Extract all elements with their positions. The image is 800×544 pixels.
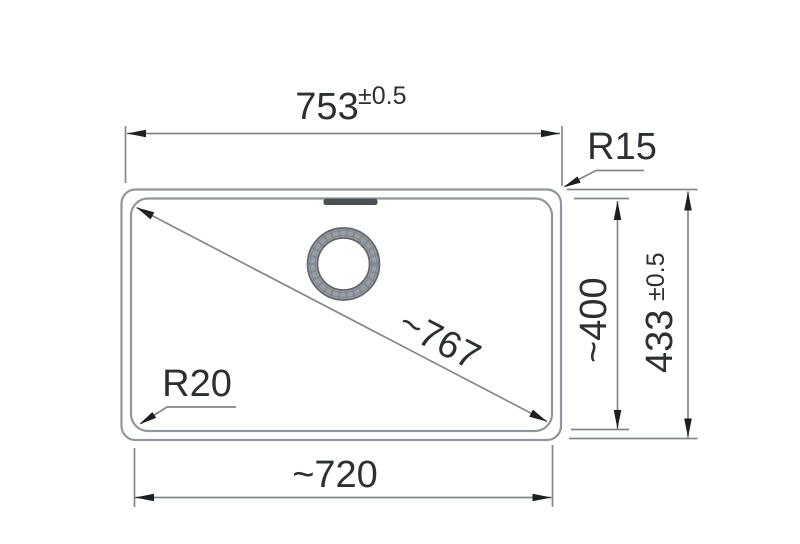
arrowhead-down-icon <box>684 419 692 438</box>
arrowhead-right-icon <box>541 130 560 138</box>
overflow-slot <box>324 199 378 205</box>
dimension-inner-depth: ~400 <box>571 199 629 430</box>
sink-dimension-drawing: 753 ±0.5 ~720 ~400 433 <box>0 0 800 544</box>
arrowhead-up-icon <box>614 201 622 220</box>
leader-line <box>141 407 236 424</box>
inner-radius-label: R20 <box>162 363 232 405</box>
diagonal-value: ~767 <box>392 302 487 379</box>
arrowhead-left-icon <box>127 130 146 138</box>
leader-arrowhead-icon <box>139 412 156 425</box>
drain-ring-mid-outer <box>310 231 377 298</box>
leader-arrowhead-icon <box>563 176 581 187</box>
arrowhead-up-icon <box>684 192 692 211</box>
outer-width-tolerance: ±0.5 <box>358 82 406 110</box>
dimension-inner-width: ~720 <box>135 445 553 507</box>
drawing-canvas: 753 ±0.5 ~720 ~400 433 <box>0 0 800 544</box>
outer-width-value: 753 <box>295 86 358 128</box>
drain-ring-inner-edge <box>318 238 370 290</box>
drain-hole <box>308 228 380 300</box>
outer-depth-tolerance: ±0.5 <box>642 253 670 301</box>
outer-depth-value: 433 <box>639 310 681 373</box>
outer-radius-label: R15 <box>587 126 657 168</box>
arrowhead-upleft-icon <box>137 208 155 220</box>
drain-ring-mid-inner <box>315 235 372 292</box>
arrowhead-downright-icon <box>529 410 547 422</box>
callout-inner-radius: R20 <box>139 363 236 425</box>
inner-width-value: ~720 <box>292 454 378 496</box>
arrowhead-right-icon <box>533 494 552 502</box>
arrowhead-down-icon <box>614 410 622 429</box>
callout-outer-radius: R15 <box>563 126 657 188</box>
inner-depth-value: ~400 <box>573 277 615 363</box>
arrowhead-left-icon <box>135 494 154 502</box>
dimension-outer-width: 753 ±0.5 <box>126 82 563 186</box>
